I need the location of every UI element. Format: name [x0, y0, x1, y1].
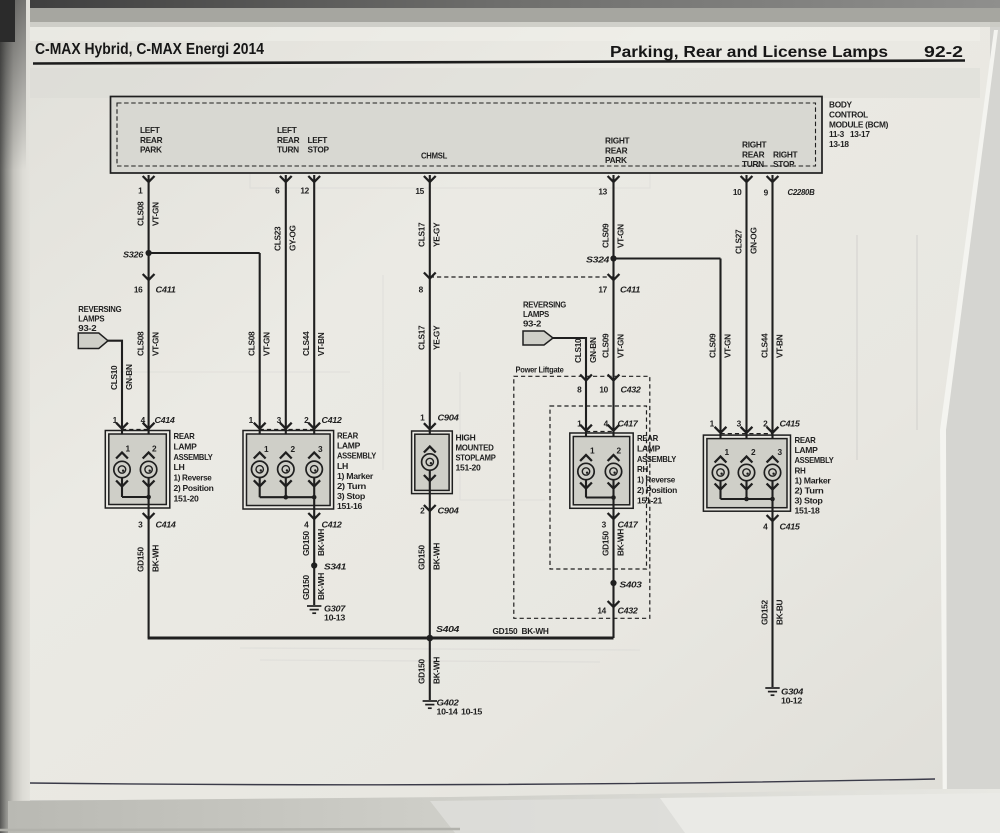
- svg-text:9: 9: [764, 188, 769, 198]
- svg-text:ASSEMBLY: ASSEMBLY: [795, 455, 835, 465]
- svg-text:3) Stop: 3) Stop: [795, 496, 823, 506]
- svg-text:CLS09: CLS09: [707, 333, 717, 358]
- svg-text:CLS23: CLS23: [273, 226, 283, 251]
- svg-text:C415: C415: [780, 419, 801, 429]
- svg-text:10-12: 10-12: [781, 696, 803, 706]
- svg-text:10-15: 10-15: [461, 707, 483, 717]
- svg-text:RIGHT: RIGHT: [773, 149, 798, 159]
- svg-text:2: 2: [152, 444, 157, 454]
- svg-text:TURN: TURN: [277, 145, 299, 155]
- svg-text:1: 1: [725, 447, 730, 457]
- svg-text:CLS08: CLS08: [135, 201, 145, 226]
- svg-text:ASSEMBLY: ASSEMBLY: [174, 452, 214, 462]
- svg-text:LEFT: LEFT: [277, 125, 297, 135]
- svg-text:2) Turn: 2) Turn: [795, 486, 824, 496]
- svg-text:CLS08: CLS08: [135, 331, 145, 356]
- svg-text:C414: C414: [156, 520, 177, 530]
- svg-text:1) Marker: 1) Marker: [795, 475, 832, 485]
- svg-text:2: 2: [751, 447, 756, 457]
- svg-text:1) Marker: 1) Marker: [337, 471, 374, 481]
- svg-text:VT-BN: VT-BN: [774, 334, 784, 358]
- svg-text:C414: C414: [155, 415, 176, 425]
- svg-text:1: 1: [590, 446, 595, 456]
- svg-text:BK-BU: BK-BU: [774, 599, 784, 625]
- svg-text:LAMPS: LAMPS: [78, 314, 105, 324]
- svg-text:BK-WH: BK-WH: [432, 657, 442, 684]
- svg-text:15: 15: [415, 186, 424, 196]
- svg-text:3: 3: [602, 520, 607, 530]
- svg-text:STOP: STOP: [308, 145, 330, 155]
- svg-text:C417: C417: [618, 419, 639, 429]
- svg-text:VT-GN: VT-GN: [262, 332, 272, 356]
- svg-text:8: 8: [577, 385, 582, 395]
- svg-text:BODY: BODY: [829, 100, 853, 110]
- svg-text:CLS08: CLS08: [247, 331, 257, 356]
- svg-text:GN-BN: GN-BN: [124, 364, 134, 390]
- svg-text:4: 4: [304, 520, 309, 530]
- svg-text:93-2: 93-2: [523, 319, 542, 329]
- svg-text:CLS44: CLS44: [759, 333, 769, 358]
- svg-text:C2280B: C2280B: [788, 187, 815, 197]
- svg-text:VT-GN: VT-GN: [722, 334, 732, 358]
- svg-text:1: 1: [138, 186, 143, 196]
- svg-text:REVERSING: REVERSING: [523, 300, 566, 310]
- svg-text:CHMSL: CHMSL: [421, 151, 447, 161]
- svg-text:GN-OG: GN-OG: [748, 227, 758, 254]
- svg-text:REAR: REAR: [174, 431, 195, 441]
- svg-text:1: 1: [264, 444, 269, 454]
- svg-text:BK-WH: BK-WH: [316, 529, 326, 556]
- svg-text:GD150: GD150: [417, 659, 427, 684]
- svg-text:C412: C412: [322, 415, 343, 425]
- svg-text:3: 3: [318, 444, 323, 454]
- svg-text:8: 8: [419, 285, 424, 295]
- svg-text:10: 10: [599, 385, 608, 395]
- svg-text:PARK: PARK: [605, 155, 627, 165]
- svg-text:151-16: 151-16: [337, 501, 363, 511]
- svg-text:CLS27: CLS27: [733, 229, 743, 254]
- svg-text:LEFT: LEFT: [140, 125, 160, 135]
- svg-text:2) Position: 2) Position: [637, 485, 677, 495]
- svg-text:YE-GY: YE-GY: [432, 325, 442, 350]
- svg-text:RIGHT: RIGHT: [742, 140, 767, 150]
- svg-text:GD150: GD150: [301, 575, 311, 600]
- svg-text:LH: LH: [174, 462, 185, 472]
- svg-text:PARK: PARK: [140, 145, 162, 155]
- svg-text:GD150: GD150: [301, 531, 311, 556]
- svg-text:2: 2: [617, 446, 622, 456]
- svg-text:14: 14: [597, 606, 606, 616]
- svg-text:CLS09: CLS09: [600, 333, 610, 358]
- svg-text:151-18: 151-18: [795, 506, 821, 516]
- svg-text:2: 2: [420, 506, 425, 516]
- svg-text:1: 1: [710, 419, 715, 429]
- svg-text:4: 4: [763, 522, 768, 532]
- svg-text:STOPLAMP: STOPLAMP: [456, 453, 497, 463]
- svg-text:1) Reverse: 1) Reverse: [174, 473, 213, 483]
- svg-text:VT-BN: VT-BN: [316, 332, 326, 356]
- svg-text:1: 1: [249, 415, 254, 425]
- svg-text:BK-WH: BK-WH: [316, 573, 326, 600]
- svg-text:S324: S324: [586, 255, 610, 265]
- svg-text:C411: C411: [620, 285, 641, 295]
- svg-text:CLS44: CLS44: [301, 331, 311, 356]
- svg-text:GN-BN: GN-BN: [588, 337, 598, 363]
- svg-text:Power Liftgate: Power Liftgate: [516, 365, 565, 375]
- svg-text:C415: C415: [780, 522, 801, 532]
- svg-text:13: 13: [598, 187, 607, 197]
- svg-text:VT-GN: VT-GN: [150, 202, 160, 226]
- svg-text:151-20: 151-20: [174, 493, 200, 503]
- svg-text:TURN: TURN: [742, 159, 764, 169]
- svg-text:GD150: GD150: [493, 626, 518, 636]
- svg-text:Parking, Rear and License Lamp: Parking, Rear and License Lamps: [610, 44, 888, 61]
- svg-text:REVERSING: REVERSING: [78, 304, 121, 314]
- svg-text:HIGH: HIGH: [456, 433, 476, 443]
- svg-text:C904: C904: [438, 413, 460, 423]
- svg-text:2: 2: [291, 444, 296, 454]
- svg-text:92-2: 92-2: [924, 44, 963, 61]
- svg-text:3: 3: [138, 520, 143, 530]
- svg-text:1: 1: [420, 413, 425, 423]
- svg-text:151-20: 151-20: [456, 463, 482, 473]
- svg-text:1: 1: [126, 444, 131, 454]
- svg-text:GY-OG: GY-OG: [288, 225, 298, 251]
- svg-text:10-13: 10-13: [324, 613, 346, 623]
- svg-text:S403: S403: [620, 580, 643, 590]
- svg-text:CLS10: CLS10: [109, 365, 119, 390]
- svg-text:LAMP: LAMP: [174, 441, 198, 451]
- svg-text:BK-WH: BK-WH: [522, 626, 549, 636]
- svg-text:16: 16: [134, 285, 143, 295]
- svg-text:10-14: 10-14: [437, 707, 459, 717]
- svg-text:6: 6: [275, 186, 280, 196]
- svg-text:3: 3: [778, 447, 783, 457]
- svg-text:MOUNTED: MOUNTED: [456, 443, 494, 453]
- svg-text:RIGHT: RIGHT: [605, 136, 630, 146]
- svg-text:REAR: REAR: [605, 145, 628, 155]
- svg-text:CLS17: CLS17: [417, 222, 427, 247]
- svg-text:12: 12: [300, 186, 309, 196]
- svg-text:S341: S341: [324, 562, 347, 572]
- svg-text:GD150: GD150: [417, 545, 427, 570]
- svg-text:17: 17: [598, 285, 607, 295]
- svg-text:S404: S404: [436, 624, 460, 634]
- svg-text:VT-GN: VT-GN: [615, 224, 625, 248]
- svg-text:YE-GY: YE-GY: [432, 222, 442, 247]
- svg-text:REAR: REAR: [337, 431, 358, 441]
- svg-text:11-3 13-17: 11-3 13-17: [829, 129, 870, 139]
- svg-text:151-21: 151-21: [637, 495, 663, 505]
- svg-text:ASSEMBLY: ASSEMBLY: [637, 454, 677, 464]
- svg-text:RH: RH: [795, 465, 806, 475]
- svg-text:2) Position: 2) Position: [174, 483, 214, 493]
- svg-text:2) Turn: 2) Turn: [337, 481, 366, 491]
- svg-text:STOP: STOP: [773, 159, 795, 169]
- svg-text:CLS10: CLS10: [573, 338, 583, 363]
- svg-text:REAR: REAR: [795, 435, 816, 445]
- svg-text:CLS09: CLS09: [600, 223, 610, 248]
- svg-text:LAMPS: LAMPS: [523, 309, 550, 319]
- svg-text:REAR: REAR: [742, 149, 765, 159]
- svg-text:C904: C904: [438, 506, 460, 516]
- svg-text:C432: C432: [621, 385, 642, 395]
- svg-text:S326: S326: [123, 250, 144, 260]
- svg-text:13-18: 13-18: [829, 139, 849, 149]
- svg-text:REAR: REAR: [140, 135, 163, 145]
- svg-text:LAMP: LAMP: [795, 445, 819, 455]
- svg-text:GD150: GD150: [600, 531, 610, 556]
- svg-text:LAMP: LAMP: [337, 441, 361, 451]
- svg-text:GD150: GD150: [135, 547, 145, 572]
- svg-text:REAR: REAR: [277, 135, 300, 145]
- svg-text:BK-WH: BK-WH: [432, 543, 442, 570]
- svg-text:10: 10: [733, 187, 742, 197]
- svg-text:C412: C412: [322, 520, 343, 530]
- svg-text:LAMP: LAMP: [637, 443, 661, 453]
- svg-text:1) Reverse: 1) Reverse: [637, 475, 676, 485]
- svg-text:RH: RH: [637, 464, 648, 474]
- svg-text:CONTROL: CONTROL: [829, 109, 868, 119]
- svg-text:MODULE (BCM): MODULE (BCM): [829, 119, 889, 129]
- svg-text:VT-GN: VT-GN: [615, 334, 625, 358]
- svg-text:4: 4: [604, 419, 609, 429]
- svg-text:C417: C417: [618, 520, 639, 530]
- svg-text:C432: C432: [618, 606, 639, 616]
- svg-text:BK-WH: BK-WH: [150, 545, 160, 572]
- svg-text:VT-GN: VT-GN: [150, 332, 160, 356]
- svg-text:3) Stop: 3) Stop: [337, 491, 365, 501]
- svg-text:93-2: 93-2: [78, 323, 97, 333]
- svg-text:BK-WH: BK-WH: [615, 529, 625, 556]
- svg-text:REAR: REAR: [637, 433, 658, 443]
- svg-text:C-MAX Hybrid, C-MAX Energi 201: C-MAX Hybrid, C-MAX Energi 2014: [35, 41, 264, 58]
- svg-text:ASSEMBLY: ASSEMBLY: [337, 451, 377, 461]
- svg-text:GD152: GD152: [759, 600, 769, 625]
- svg-text:CLS17: CLS17: [417, 325, 427, 350]
- svg-text:C411: C411: [156, 285, 177, 295]
- svg-text:LEFT: LEFT: [308, 135, 328, 145]
- svg-text:LH: LH: [337, 461, 348, 471]
